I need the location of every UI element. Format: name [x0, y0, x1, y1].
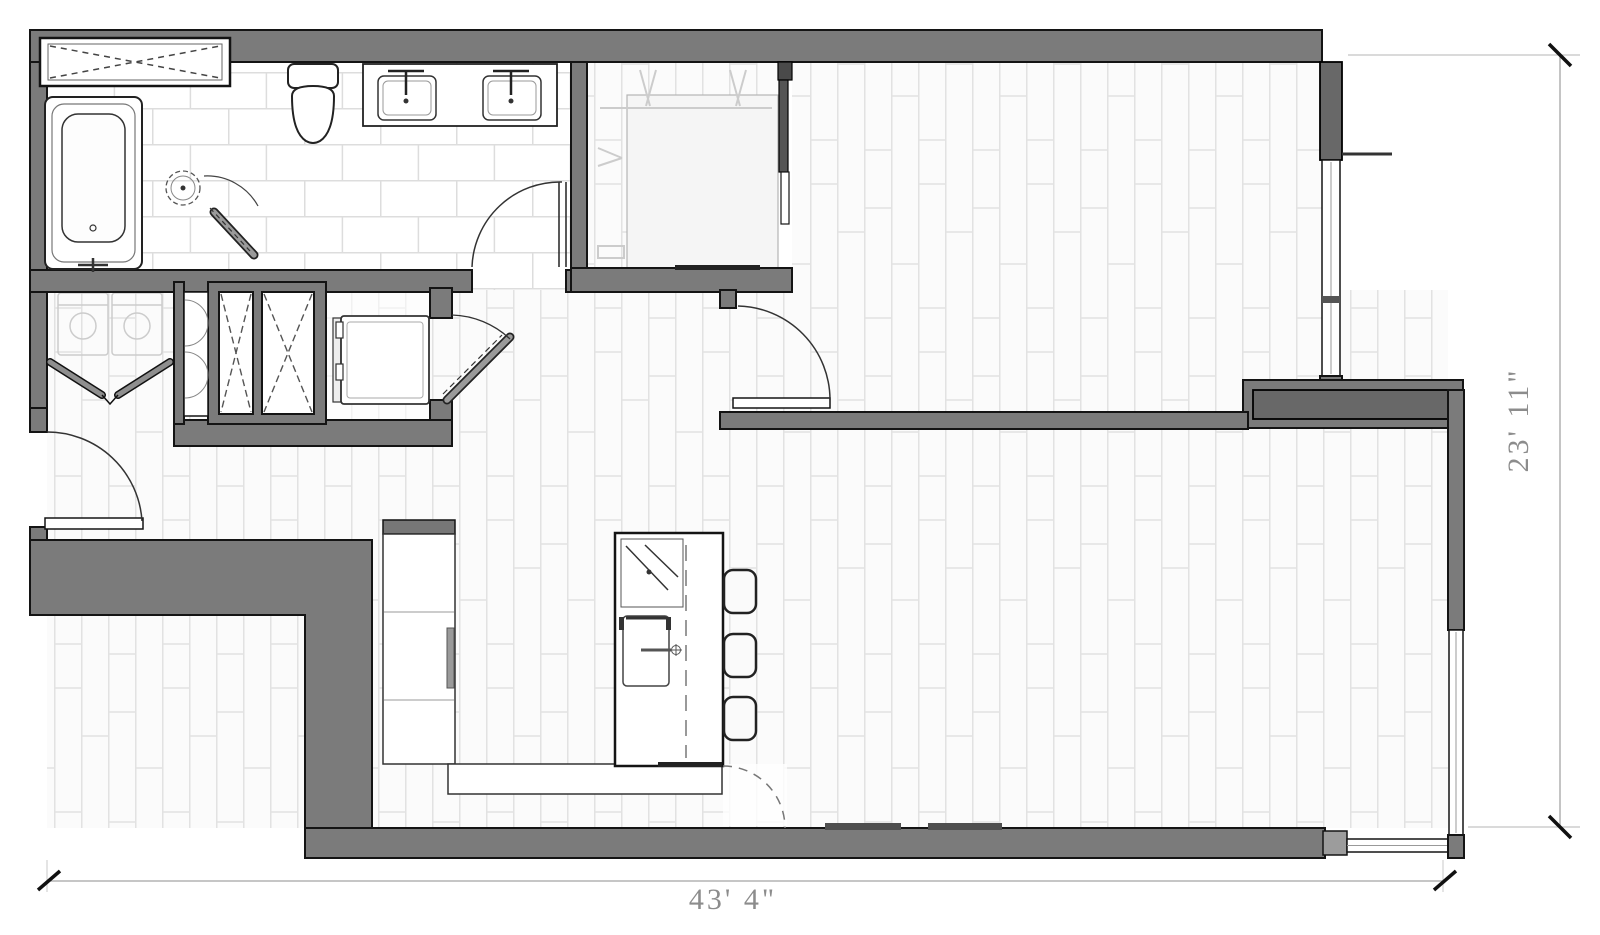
width-dimension-label: 43' 4" — [689, 883, 777, 916]
right-wall-bottom-cap — [1448, 835, 1464, 858]
closet-box-wide — [262, 292, 314, 414]
floor-plan-canvas: 43' 4" 23' 11" — [0, 0, 1600, 935]
kitchen-landing — [723, 764, 787, 826]
hall-door-post-top — [430, 288, 452, 318]
bedroom-living-wall — [720, 412, 1248, 429]
closet-rug — [627, 95, 778, 268]
bench — [333, 316, 429, 404]
bottom-wall-end-block — [1323, 831, 1347, 855]
bottom-exterior-wall — [305, 828, 1325, 858]
arc-cabinet — [184, 292, 208, 416]
floor-threshold — [928, 823, 1002, 830]
right-exterior-wall-lower — [1448, 390, 1464, 630]
kitchen-island — [615, 533, 723, 767]
closet-box-narrow — [219, 292, 253, 414]
closet-row-post — [174, 282, 184, 424]
bar-stool — [724, 634, 756, 677]
bar-stool — [724, 697, 756, 740]
bedroom-right-wall-upper — [1320, 62, 1342, 160]
entry-door-jamb-top — [30, 408, 47, 432]
bar-stools — [724, 570, 756, 740]
sliding-door-track — [778, 62, 792, 80]
kitchen-tall-cabinets — [383, 520, 455, 764]
floor-plan-drawing: 43' 4" 23' 11" — [0, 0, 1600, 935]
floor-threshold — [825, 823, 901, 830]
kitchen-counter — [448, 764, 722, 794]
sliding-door-panel-closed — [779, 80, 788, 172]
bedroom-window-mullion — [1322, 296, 1340, 303]
fridge-handle — [447, 628, 454, 688]
vanity-double-sink — [363, 64, 557, 126]
closet-west-wall — [571, 62, 587, 270]
height-dimension-label: 23' 11" — [1502, 367, 1535, 472]
bathtub — [45, 97, 142, 272]
obscure-glass-window — [40, 38, 230, 86]
sliding-door-panel-open — [781, 172, 789, 224]
closet-south-wall — [571, 268, 792, 292]
divider-wall-inner-band — [1253, 390, 1453, 419]
bar-stool — [724, 570, 756, 613]
bedroom-door-post — [720, 290, 736, 308]
closet-threshold — [675, 265, 760, 270]
